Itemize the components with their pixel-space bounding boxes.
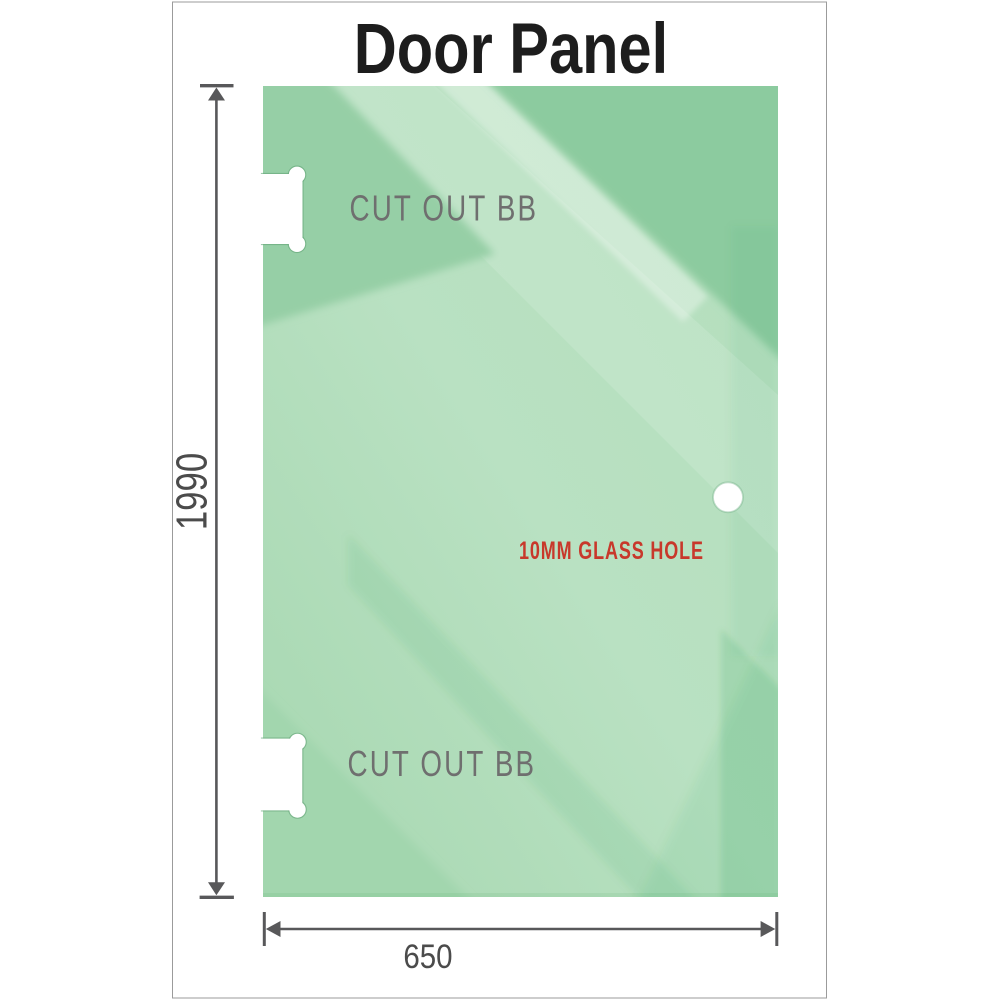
svg-text:Door Panel: Door Panel [354, 8, 668, 88]
svg-text:CUT OUT BB: CUT OUT BB [348, 743, 537, 783]
svg-text:CUT OUT BB: CUT OUT BB [350, 188, 539, 228]
svg-text:650: 650 [403, 937, 452, 976]
svg-text:1990: 1990 [168, 453, 217, 530]
svg-text:10MM GLASS HOLE: 10MM GLASS HOLE [519, 536, 704, 565]
